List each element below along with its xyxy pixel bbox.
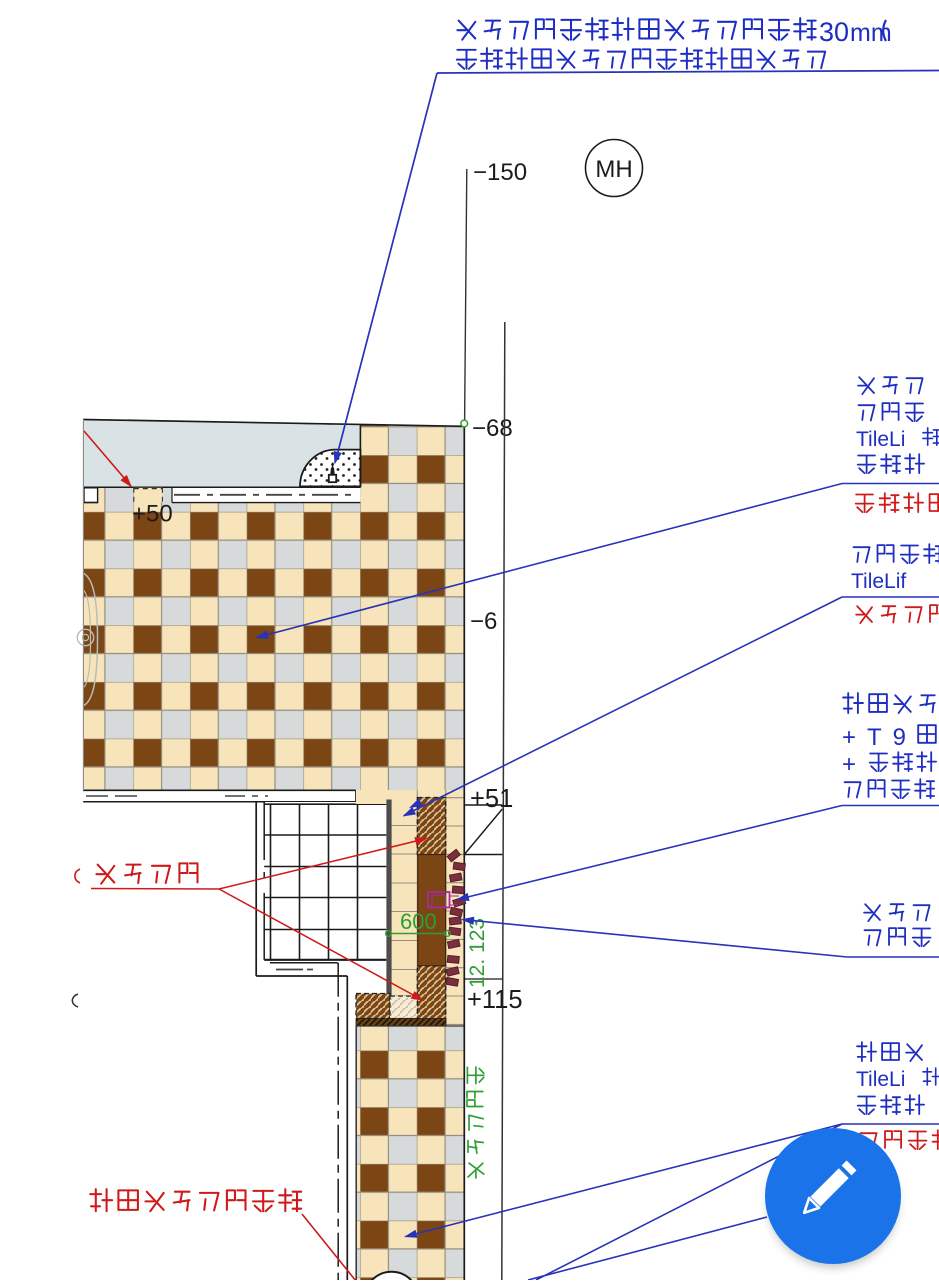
svg-text:−68: −68	[472, 415, 513, 442]
svg-text:TileLi: TileLi	[856, 1068, 905, 1091]
svg-text:+T9: +T9	[842, 724, 917, 751]
svg-text:30: 30	[819, 17, 849, 47]
svg-text:600: 600	[400, 909, 437, 934]
svg-text:MH: MH	[595, 156, 632, 183]
svg-text:+51: +51	[470, 785, 513, 813]
svg-text:TileLif: TileLif	[851, 570, 906, 593]
svg-text:−6: −6	[470, 608, 497, 635]
svg-text:+: +	[842, 751, 856, 778]
svg-text:+50: +50	[132, 501, 173, 528]
svg-text:−150: −150	[473, 159, 527, 186]
svg-text:+115: +115	[467, 986, 523, 1014]
svg-text:TileLi: TileLi	[856, 428, 905, 451]
svg-text:12. 123: 12. 123	[466, 918, 489, 988]
